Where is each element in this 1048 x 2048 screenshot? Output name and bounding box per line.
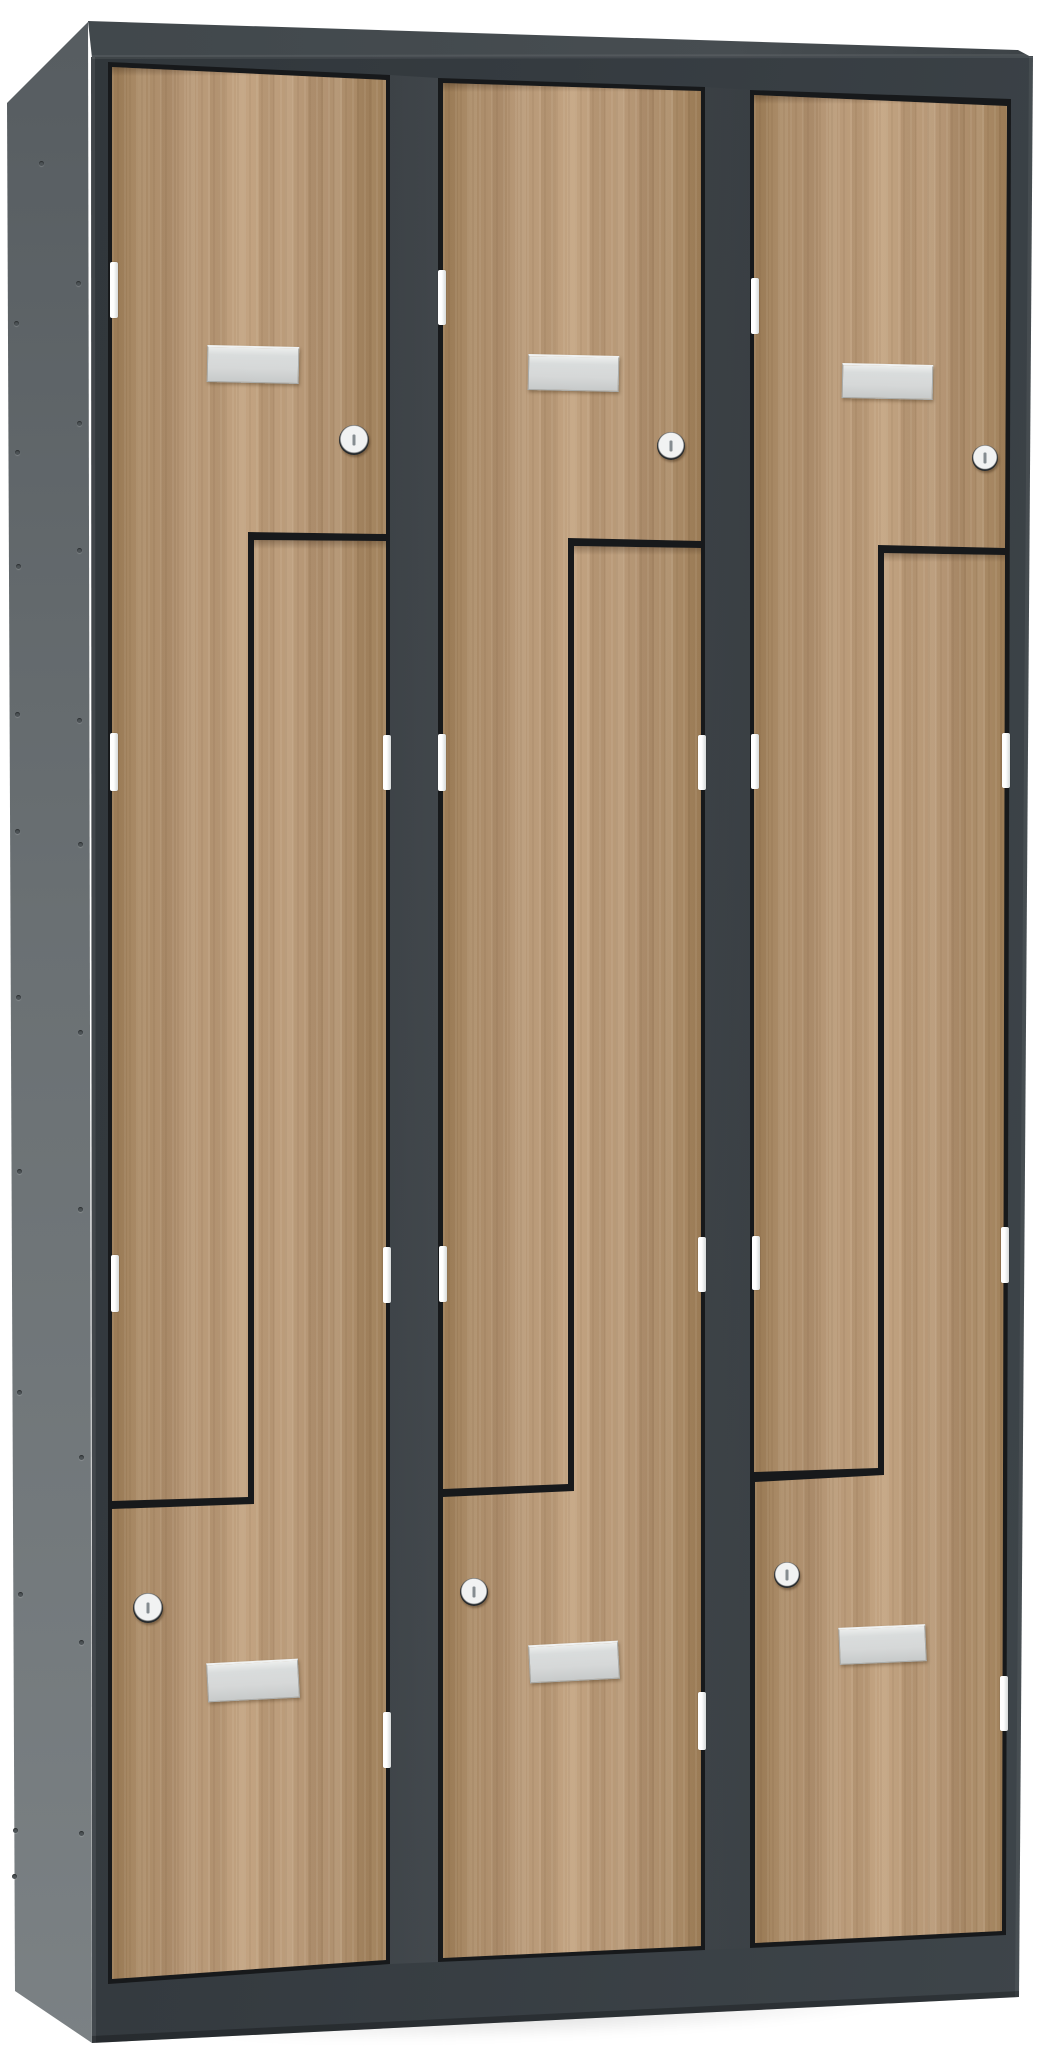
col2-top-door-lock <box>657 432 685 460</box>
col1-bottom-door-lock <box>133 1593 163 1623</box>
key-slot <box>473 1587 476 1598</box>
door-hinge <box>111 1255 119 1312</box>
rivet-dot <box>17 1169 22 1174</box>
rivet-dot <box>17 1390 22 1395</box>
locker-product-render <box>0 0 1048 2048</box>
door-hinge <box>1000 1676 1008 1731</box>
key-slot <box>353 435 356 446</box>
door-hinge <box>383 1247 391 1303</box>
rivet-dot <box>78 842 83 847</box>
rivet-dot <box>78 1030 83 1035</box>
door-hinge <box>110 733 118 791</box>
rivet-dot <box>39 161 44 166</box>
col1-bottom-door-name-plate <box>206 1659 300 1703</box>
col1-top-door-name-plate <box>207 345 300 384</box>
col2-top-door-name-plate <box>528 354 620 392</box>
rivet-dot <box>78 1207 83 1212</box>
door-hinge <box>698 1237 706 1292</box>
key-slot <box>670 441 673 452</box>
door-hinge <box>439 1246 447 1302</box>
door-hinge <box>383 735 391 790</box>
door-hinge <box>698 735 706 790</box>
door-hinge <box>751 734 759 789</box>
col2-bottom-door-lock <box>460 1578 488 1606</box>
door-hinge <box>110 262 118 318</box>
rivet-dot <box>79 1831 84 1836</box>
key-slot <box>147 1603 150 1614</box>
col2-bottom-door-name-plate <box>528 1641 620 1684</box>
rivet-dot <box>77 421 82 426</box>
door-hinge <box>698 1692 706 1750</box>
door-hinge <box>1001 1227 1009 1283</box>
rivet-dot <box>77 548 82 553</box>
door-hinge <box>751 278 759 334</box>
door-hinge <box>1002 733 1010 788</box>
rivet-dot <box>13 1828 18 1833</box>
rivet-dot <box>76 281 81 286</box>
rivet-dot <box>15 450 20 455</box>
rivet-dot <box>14 321 19 326</box>
door-hinge <box>752 1236 760 1290</box>
col3-bottom-door-lock <box>774 1562 800 1588</box>
col3-bottom-door-name-plate <box>838 1624 927 1665</box>
rivet-dot <box>16 564 21 569</box>
rivet-dot <box>77 718 82 723</box>
rivet-dot <box>12 1874 17 1879</box>
key-slot <box>786 1570 789 1581</box>
door-hinge <box>438 734 446 791</box>
door-hinge <box>383 1712 391 1768</box>
rivet-dot <box>15 829 20 834</box>
col1-top-door-lock <box>339 425 369 455</box>
door-hinge <box>438 270 446 325</box>
rivet-dot <box>16 995 21 1000</box>
rivet-dot <box>15 712 20 717</box>
rivet-dot <box>79 1640 84 1645</box>
col3-top-door-lock <box>972 445 998 471</box>
rivet-dot <box>79 1455 84 1460</box>
rivet-dot <box>18 1592 23 1597</box>
key-slot <box>984 453 987 464</box>
col3-top-door-name-plate <box>842 363 934 400</box>
